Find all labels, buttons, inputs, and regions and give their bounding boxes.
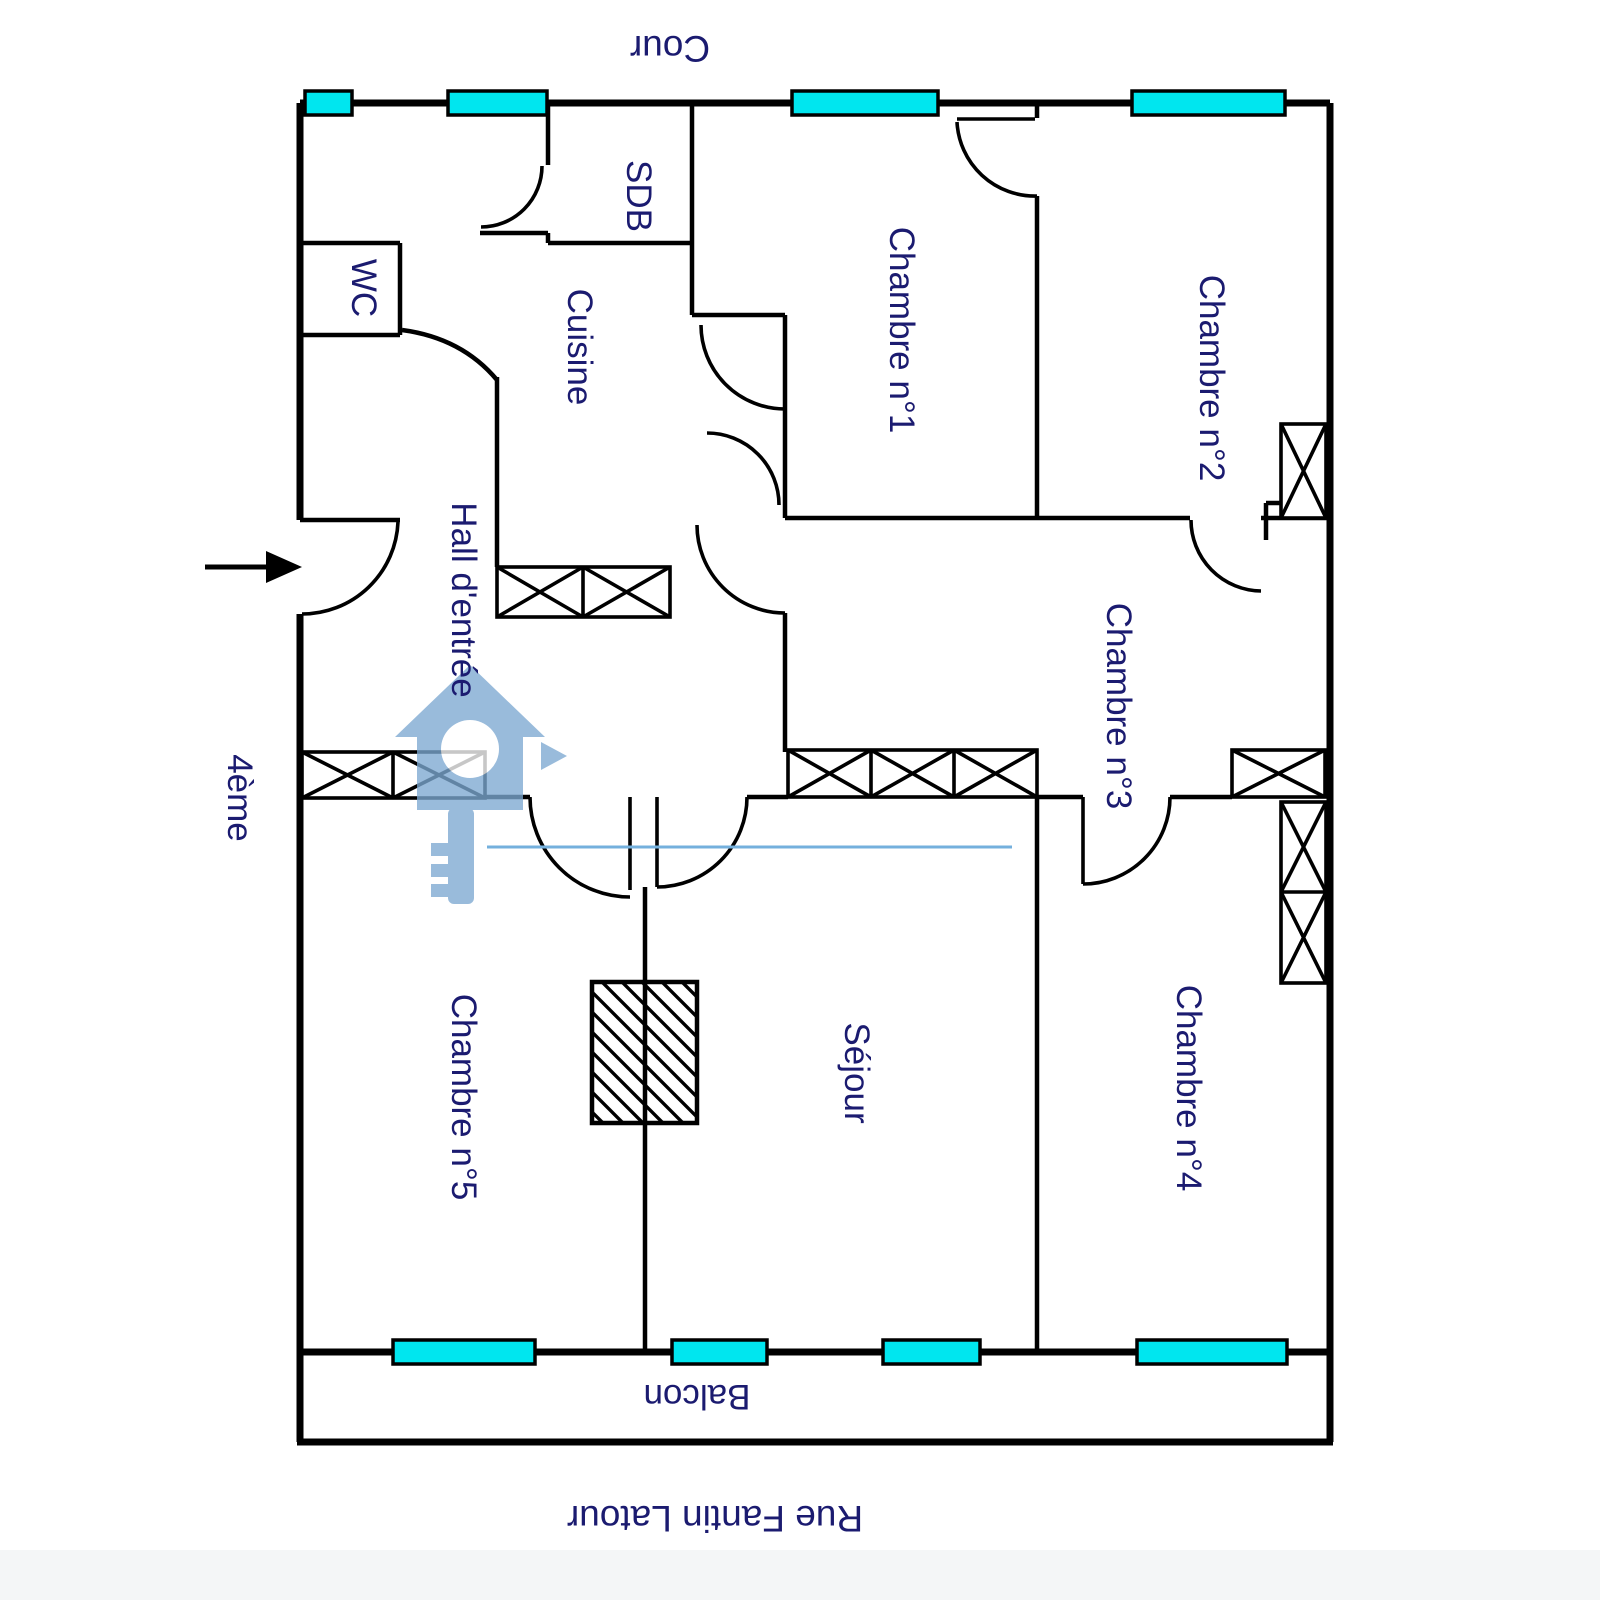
crossed-wall-right xyxy=(1232,750,1325,797)
label-chambre-1: Chambre n°1 xyxy=(882,227,921,434)
window-marker xyxy=(1132,91,1285,115)
door-arc-corridor-top xyxy=(701,325,785,409)
door-arc-sejour-right xyxy=(657,797,747,887)
crossed-wall-middle xyxy=(788,750,1037,797)
label-chambre-4: Chambre n°4 xyxy=(1169,985,1208,1192)
door-arc-entrance xyxy=(302,522,398,614)
chimney-hatched xyxy=(592,982,697,1123)
entrance-arrow-icon xyxy=(205,551,302,583)
door-arc-corridor-bottom xyxy=(707,433,779,505)
label-etage: 4ème xyxy=(220,754,259,842)
label-cuisine: Cuisine xyxy=(560,289,599,406)
label-wc: WC xyxy=(344,259,383,317)
door-arc-sdb xyxy=(481,166,542,227)
crossed-wall-cuisine xyxy=(497,567,670,617)
window-marker xyxy=(393,1340,535,1364)
shaft-chambre2 xyxy=(1281,424,1326,518)
label-sdb: SDB xyxy=(619,160,658,232)
door-arc-chambre2-chambre3 xyxy=(1191,520,1261,591)
window-marker xyxy=(792,91,938,115)
page-edge-strip xyxy=(0,1550,1600,1600)
window-marker xyxy=(672,1340,767,1364)
door-arc-chambre3 xyxy=(697,525,785,613)
floor-plan-canvas: Cour SDB WC Cuisine Hall d'entrée Chambr… xyxy=(0,0,1600,1600)
door-arc-chambre1 xyxy=(957,122,1037,196)
label-chambre-2: Chambre n°2 xyxy=(1192,275,1231,482)
label-chambre-5: Chambre n°5 xyxy=(444,994,483,1201)
label-chambre-3: Chambre n°3 xyxy=(1099,603,1138,810)
floor-plan-page: Cour SDB WC Cuisine Hall d'entrée Chambr… xyxy=(0,0,1600,1600)
window-marker xyxy=(1137,1340,1287,1364)
watermark-key-icon xyxy=(395,665,567,904)
label-hall-entree: Hall d'entrée xyxy=(444,502,483,697)
window-marker xyxy=(883,1340,980,1364)
label-cour: Cour xyxy=(630,28,710,69)
shaft-chambre4 xyxy=(1281,802,1326,983)
label-rue: Rue Fantin Latour xyxy=(567,1498,863,1539)
window-marker xyxy=(305,91,352,115)
door-arc-chambre4 xyxy=(1083,797,1170,884)
window-marker xyxy=(448,91,547,115)
label-balcon: Balcon xyxy=(643,1377,750,1416)
label-sejour: Séjour xyxy=(837,1022,876,1124)
